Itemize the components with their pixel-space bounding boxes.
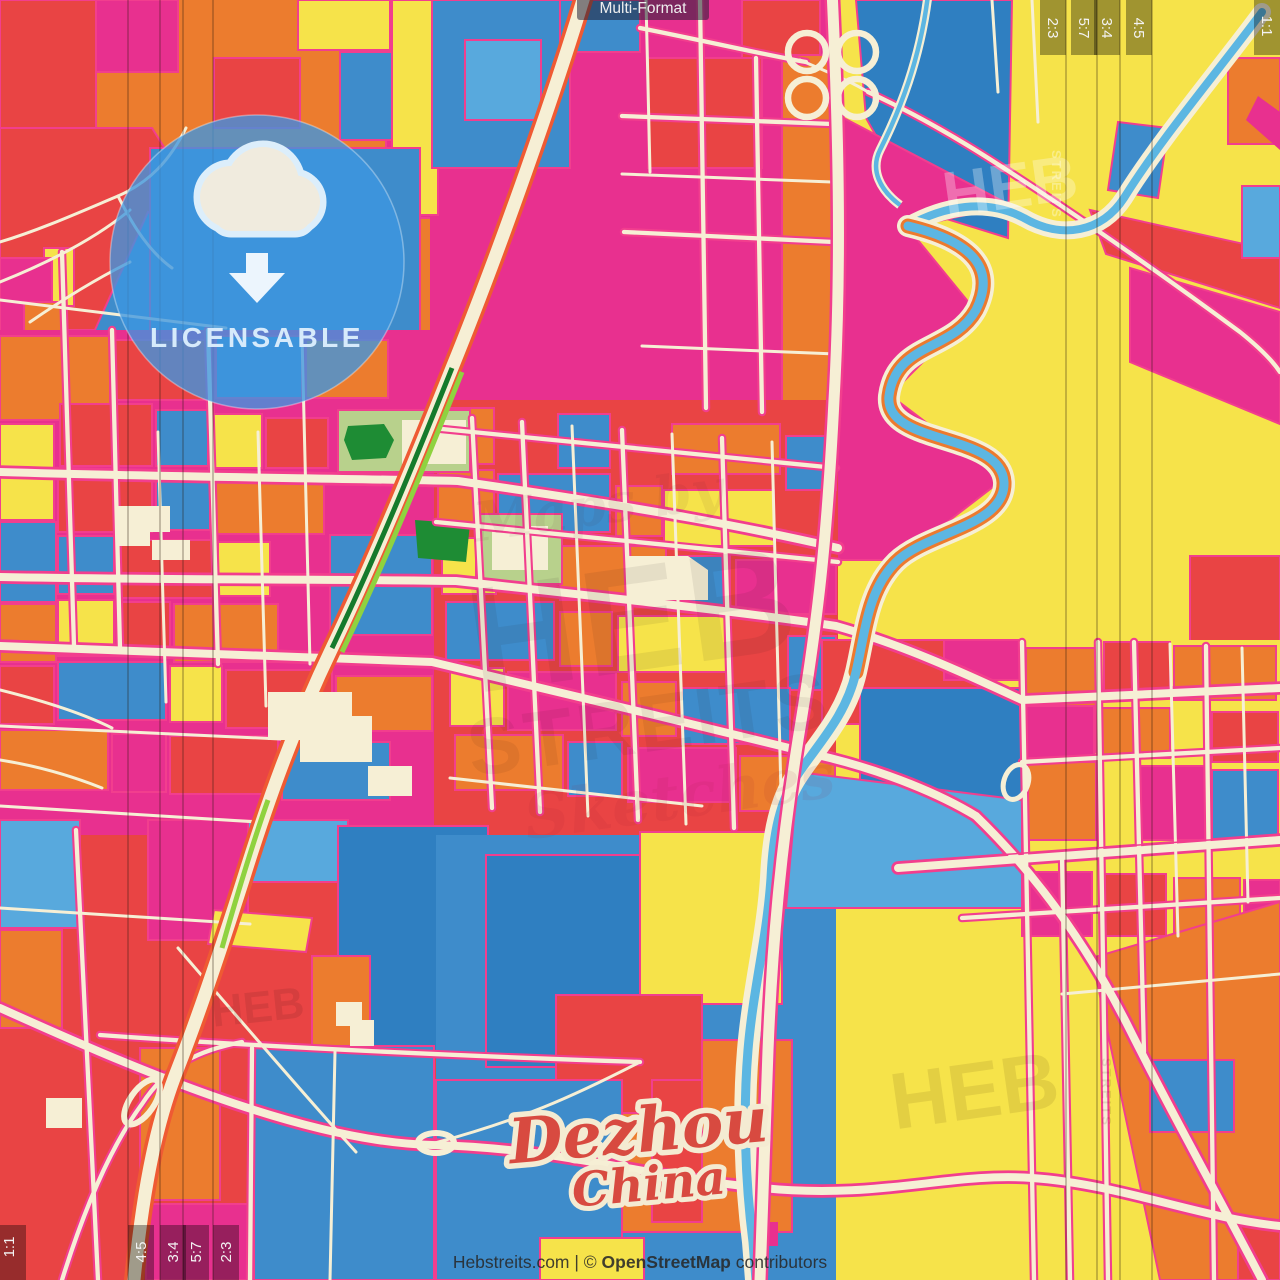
ratio-label-top-corner: 1:1 (1258, 16, 1275, 37)
licensable-badge[interactable]: LICENSABLE (110, 115, 404, 409)
svg-text:STREITS: STREITS (1049, 150, 1064, 219)
attribution-site-link[interactable]: Hebstreits.com | © (453, 1252, 602, 1272)
licensable-label: LICENSABLE (150, 322, 364, 353)
ratio-label-top: 2:3 (1044, 18, 1061, 39)
ratio-label-top: 3:4 (1098, 18, 1115, 39)
attribution-osm-link[interactable]: OpenStreetMap (602, 1252, 731, 1272)
watermark-bottom-left: HEB (209, 978, 307, 1036)
ratio-label-bottom-corner: 1:1 (1, 1237, 18, 1258)
ratio-label-bottom: 4:5 (133, 1242, 150, 1263)
map-canvas: Maps by HEB STREITS Sketches HEB STREITS… (0, 0, 1280, 1280)
svg-text:Multi-Format: Multi-Format (600, 0, 688, 17)
ratio-label-bottom: 3:4 (165, 1242, 182, 1263)
map-poster: Maps by HEB STREITS Sketches HEB STREITS… (0, 0, 1280, 1280)
ratio-label-bottom: 5:7 (188, 1242, 205, 1263)
attribution-suffix: contributors (731, 1252, 828, 1272)
multi-format-badge: Multi-Format (577, 0, 709, 20)
svg-text:STREITS: STREITS (1099, 1058, 1114, 1127)
ratio-label-top: 4:5 (1130, 18, 1147, 39)
ratio-label-bottom: 2:3 (218, 1242, 235, 1263)
attribution: Hebstreits.com | © OpenStreetMap contrib… (453, 1252, 828, 1272)
ratio-label-top: 5:7 (1075, 18, 1092, 39)
